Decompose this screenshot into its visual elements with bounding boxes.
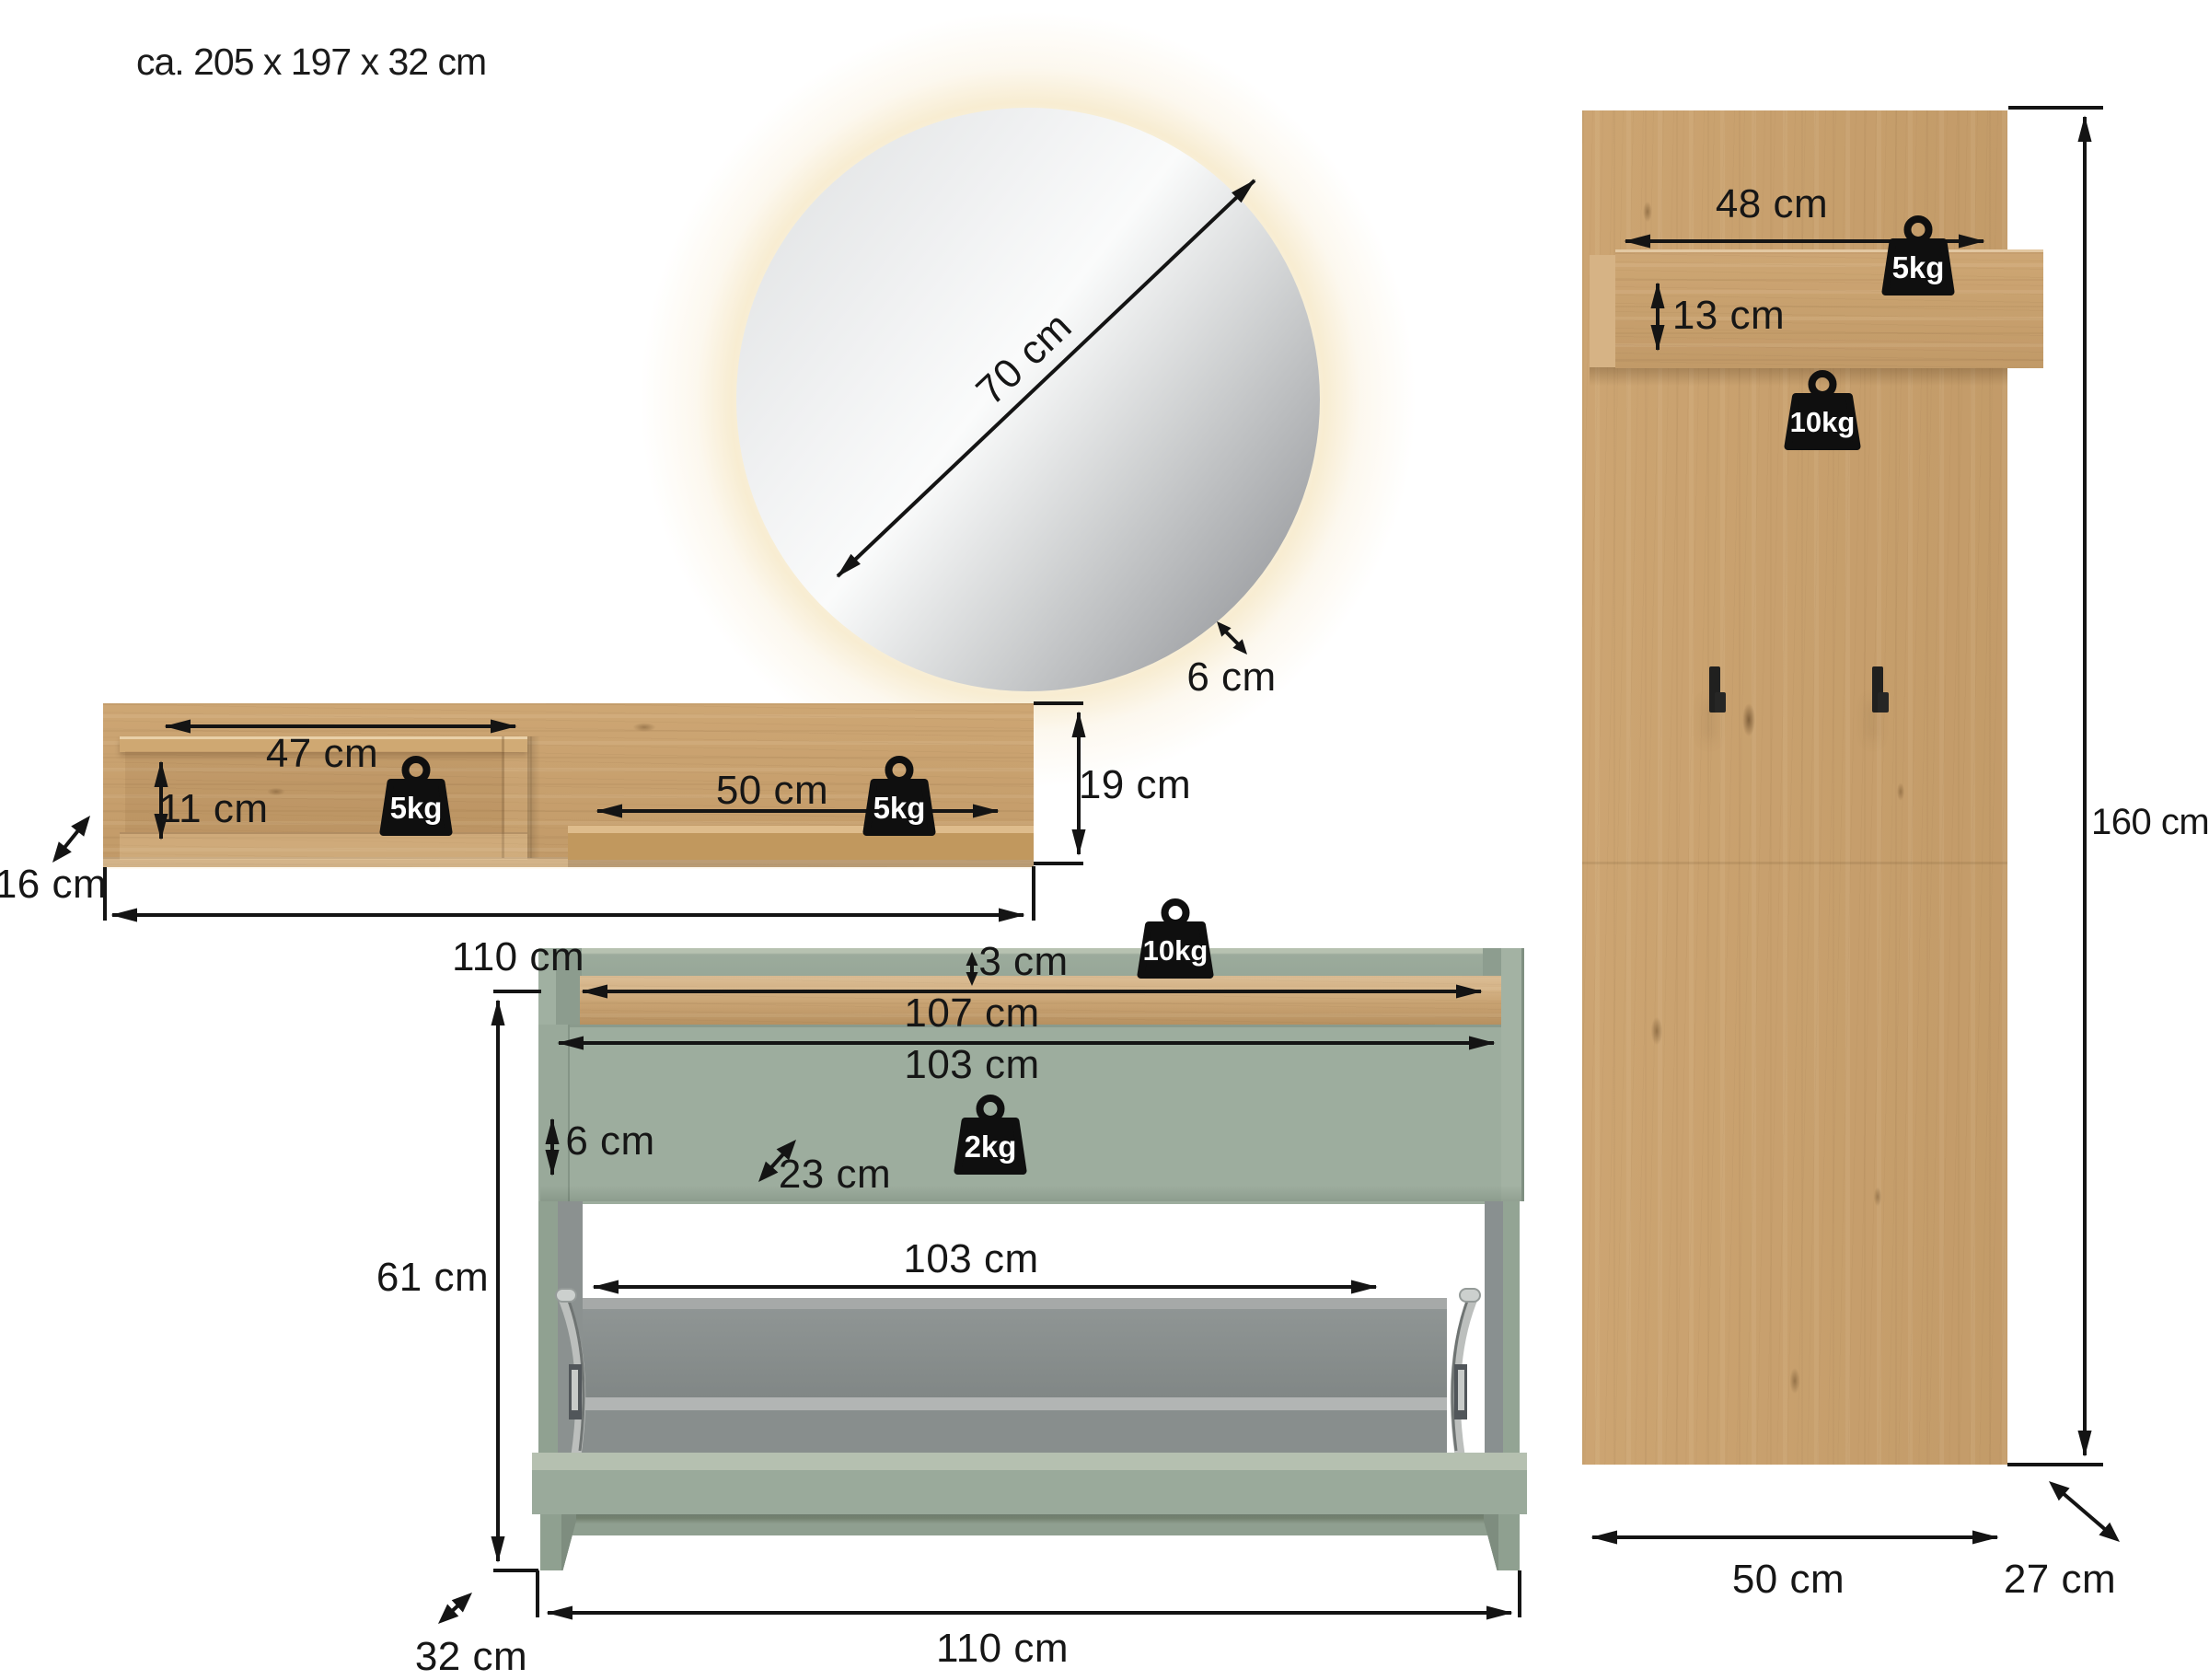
svg-text:5kg: 5kg (390, 791, 443, 825)
svg-text:2kg: 2kg (965, 1130, 1017, 1164)
svg-text:5kg: 5kg (873, 791, 926, 825)
svg-text:5kg: 5kg (1892, 250, 1945, 284)
svg-text:10kg: 10kg (1143, 934, 1209, 967)
svg-text:10kg: 10kg (1790, 406, 1856, 438)
